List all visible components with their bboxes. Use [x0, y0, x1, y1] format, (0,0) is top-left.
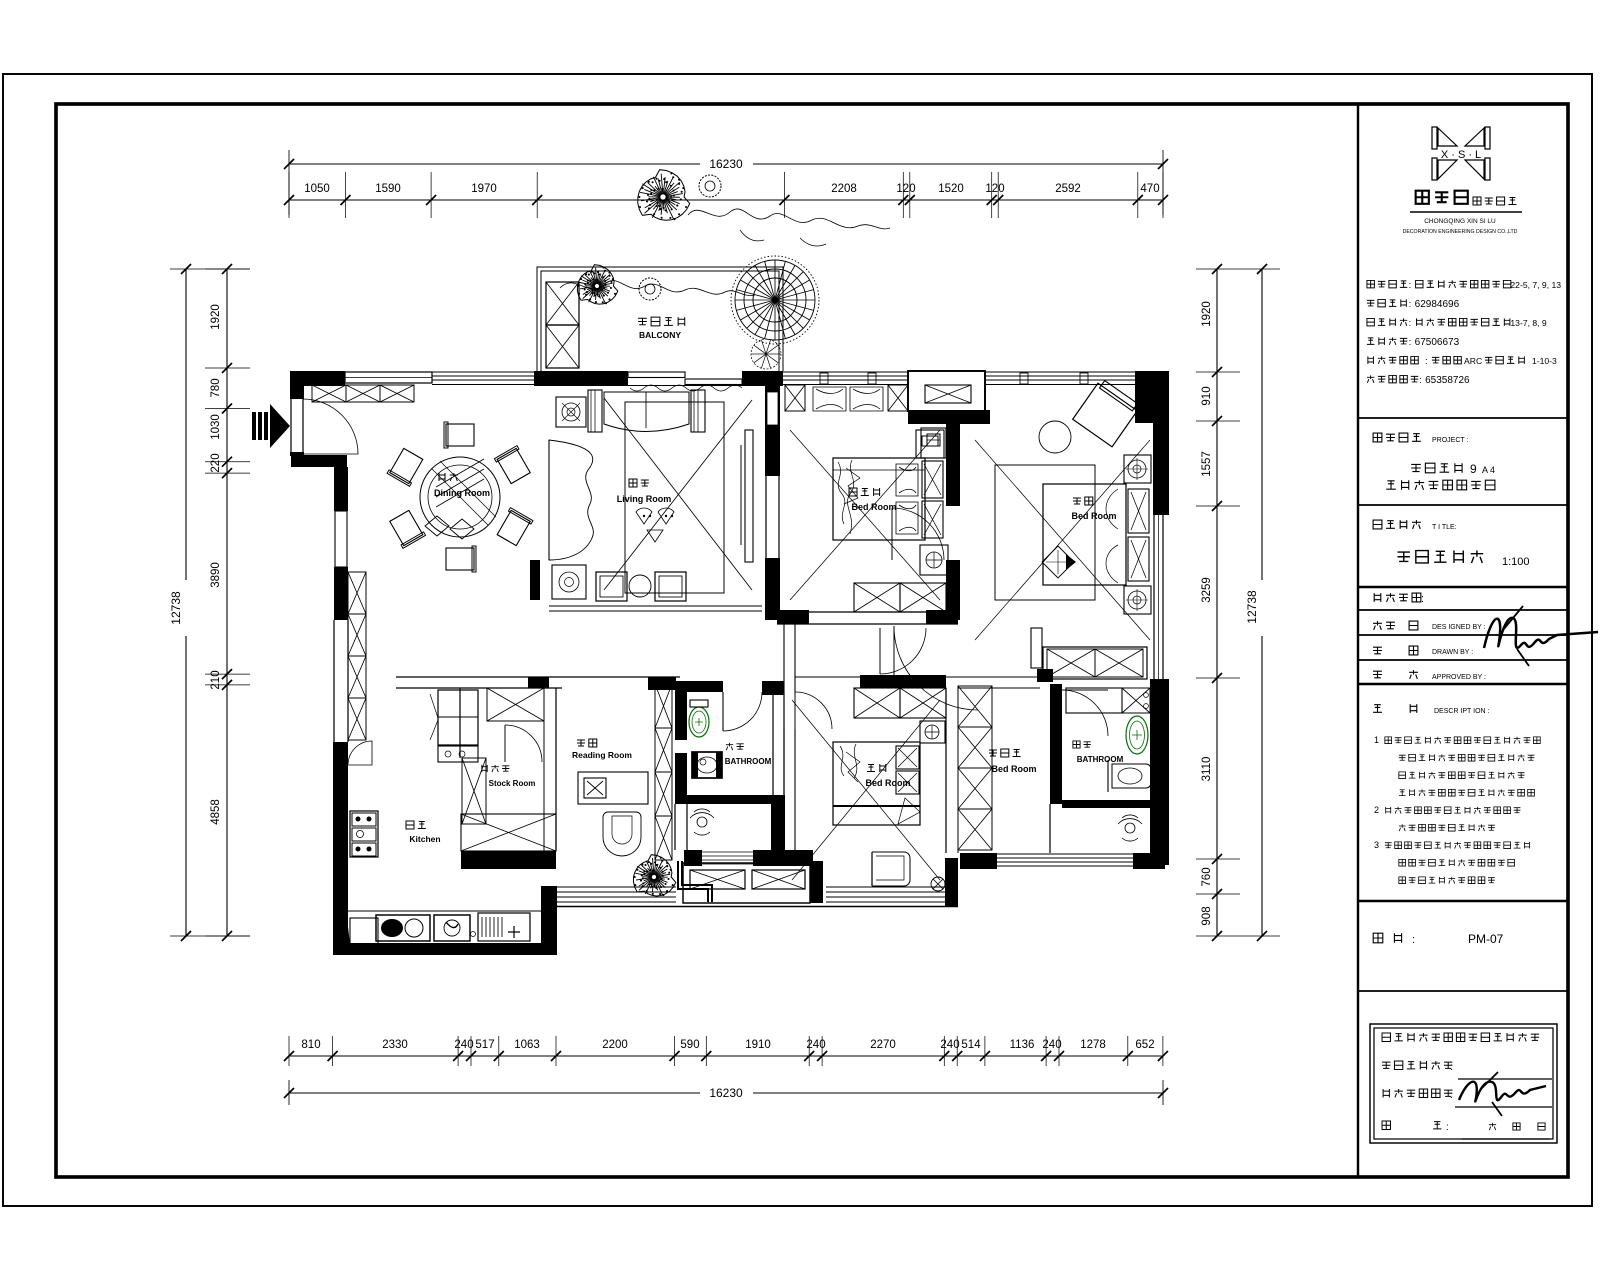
svg-text:62984696: 62984696: [1415, 299, 1460, 310]
svg-text::: :: [1425, 356, 1428, 367]
svg-text:1590: 1590: [375, 183, 401, 195]
svg-text:517: 517: [475, 1039, 494, 1051]
svg-text:2200: 2200: [602, 1039, 628, 1051]
svg-text:120: 120: [985, 183, 1004, 195]
svg-text:BALCONY: BALCONY: [639, 330, 681, 340]
svg-text:13-7, 8, 9: 13-7, 8, 9: [1510, 318, 1547, 328]
svg-text:22-5, 7, 9, 13: 22-5, 7, 9, 13: [1510, 280, 1561, 290]
svg-text:X · S · L: X · S · L: [1441, 149, 1481, 161]
svg-text:1920: 1920: [1201, 301, 1213, 327]
svg-text::: :: [1409, 318, 1412, 329]
svg-text:1557: 1557: [1201, 451, 1213, 477]
svg-text:240: 240: [454, 1039, 473, 1051]
svg-text:4858: 4858: [210, 799, 222, 825]
svg-text:16230: 16230: [709, 1086, 743, 1100]
svg-text:1920: 1920: [210, 304, 222, 330]
svg-text:65358726: 65358726: [1425, 375, 1470, 386]
svg-text:1910: 1910: [745, 1039, 771, 1051]
svg-text:3890: 3890: [210, 562, 222, 588]
svg-text:3: 3: [1374, 840, 1379, 850]
svg-text:2208: 2208: [831, 183, 857, 195]
svg-text:DRAWN BY :: DRAWN BY :: [1432, 649, 1473, 656]
svg-text:780: 780: [210, 378, 222, 397]
svg-text:908: 908: [1201, 906, 1213, 925]
svg-text::: :: [1450, 1090, 1453, 1101]
svg-text::: :: [1446, 1122, 1449, 1133]
svg-text:1278: 1278: [1080, 1039, 1106, 1051]
svg-text:T I TLE:: T I TLE:: [1432, 524, 1457, 531]
svg-text:2330: 2330: [382, 1039, 408, 1051]
svg-text:Reading Room: Reading Room: [572, 750, 632, 760]
svg-text:3110: 3110: [1201, 757, 1213, 782]
svg-text:PM-07: PM-07: [1468, 932, 1504, 946]
svg-text:1520: 1520: [938, 183, 964, 195]
svg-text::: :: [1412, 934, 1415, 946]
svg-text:1:100: 1:100: [1502, 556, 1530, 568]
svg-text:1030: 1030: [210, 414, 222, 440]
svg-text:220: 220: [210, 453, 222, 472]
svg-text:DECORATION ENGINEERING DESIGN: DECORATION ENGINEERING DESIGN CO.,LTD: [1403, 229, 1518, 235]
svg-text:240: 240: [806, 1039, 825, 1051]
svg-text:9: 9: [1470, 462, 1477, 476]
svg-text:1063: 1063: [514, 1039, 540, 1051]
svg-text::: :: [1409, 280, 1412, 291]
svg-text:1136: 1136: [1010, 1039, 1035, 1051]
svg-text:DES IGNED BY :: DES IGNED BY :: [1432, 624, 1486, 631]
svg-text:Bed Room: Bed Room: [1072, 511, 1117, 521]
svg-text:67506673: 67506673: [1415, 337, 1460, 348]
svg-text:652: 652: [1135, 1039, 1154, 1051]
svg-text:BATHROOM: BATHROOM: [725, 757, 772, 766]
svg-text::: :: [1421, 593, 1424, 605]
svg-text:514: 514: [961, 1039, 981, 1051]
svg-text:12738: 12738: [169, 591, 183, 625]
svg-text:120: 120: [896, 183, 915, 195]
svg-text:Kitchen: Kitchen: [409, 834, 440, 844]
svg-text:3259: 3259: [1201, 577, 1213, 603]
svg-text::: :: [1419, 375, 1422, 386]
svg-text:2592: 2592: [1055, 183, 1081, 195]
svg-text:760: 760: [1201, 867, 1213, 886]
svg-text:12738: 12738: [1245, 590, 1259, 624]
svg-text:BATHROOM: BATHROOM: [1077, 755, 1124, 764]
svg-text:2270: 2270: [870, 1039, 896, 1051]
svg-text:910: 910: [1201, 386, 1213, 405]
svg-text::: :: [1409, 299, 1412, 310]
svg-text:A 4: A 4: [1482, 465, 1495, 475]
svg-text:2: 2: [1374, 805, 1379, 815]
svg-text:16230: 16230: [709, 157, 743, 171]
svg-text:240: 240: [940, 1039, 959, 1051]
svg-text:590: 590: [680, 1039, 699, 1051]
svg-text:470: 470: [1140, 183, 1159, 195]
svg-text:CHONGQING XIN SI LU: CHONGQING XIN SI LU: [1424, 218, 1496, 225]
svg-text::: :: [1450, 1062, 1453, 1073]
svg-text:1: 1: [1374, 735, 1379, 745]
svg-text:DESCR IPT ION :: DESCR IPT ION :: [1434, 708, 1490, 715]
svg-text:APPROVED BY :: APPROVED BY :: [1432, 674, 1486, 681]
svg-text:PROJECT :: PROJECT :: [1432, 437, 1468, 444]
svg-text:1-10-3: 1-10-3: [1532, 356, 1557, 366]
svg-text:Bed Room: Bed Room: [992, 764, 1037, 774]
svg-text:ARC: ARC: [1464, 356, 1482, 366]
svg-text:1970: 1970: [471, 183, 497, 195]
svg-text:240: 240: [1042, 1039, 1061, 1051]
svg-text:1050: 1050: [304, 183, 330, 195]
svg-text:210: 210: [210, 670, 222, 689]
svg-text::: :: [1409, 337, 1412, 348]
svg-text:Stock Room: Stock Room: [489, 779, 536, 788]
svg-text:810: 810: [301, 1039, 320, 1051]
